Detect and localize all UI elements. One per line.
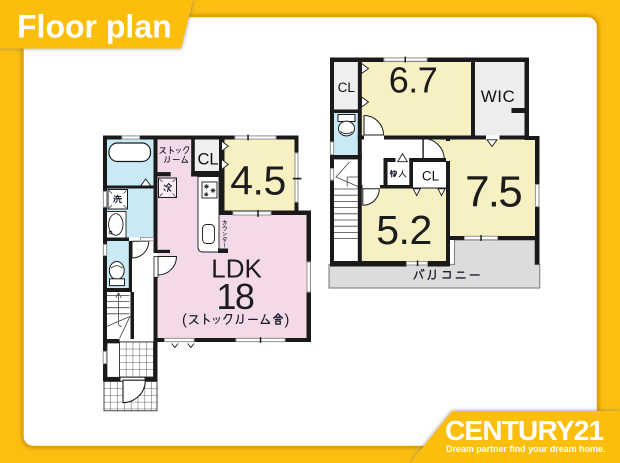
svg-text:4.5: 4.5 [230, 158, 286, 204]
svg-text:): ) [285, 313, 290, 329]
svg-text:WIC: WIC [481, 87, 516, 106]
svg-text:18: 18 [216, 276, 254, 317]
svg-text:CL: CL [198, 151, 219, 169]
svg-text:CL: CL [422, 168, 440, 183]
svg-text:Dream partner find your dream: Dream partner find your dream home. [446, 444, 605, 454]
svg-text:CENTURY21: CENTURY21 [445, 415, 604, 446]
svg-text:7.5: 7.5 [465, 168, 521, 217]
svg-text:Floor plan: Floor plan [17, 9, 172, 45]
svg-text:5.2: 5.2 [376, 207, 432, 253]
svg-text:(: ( [182, 313, 187, 329]
svg-text:CL: CL [338, 80, 356, 95]
svg-text:6.7: 6.7 [389, 60, 438, 101]
